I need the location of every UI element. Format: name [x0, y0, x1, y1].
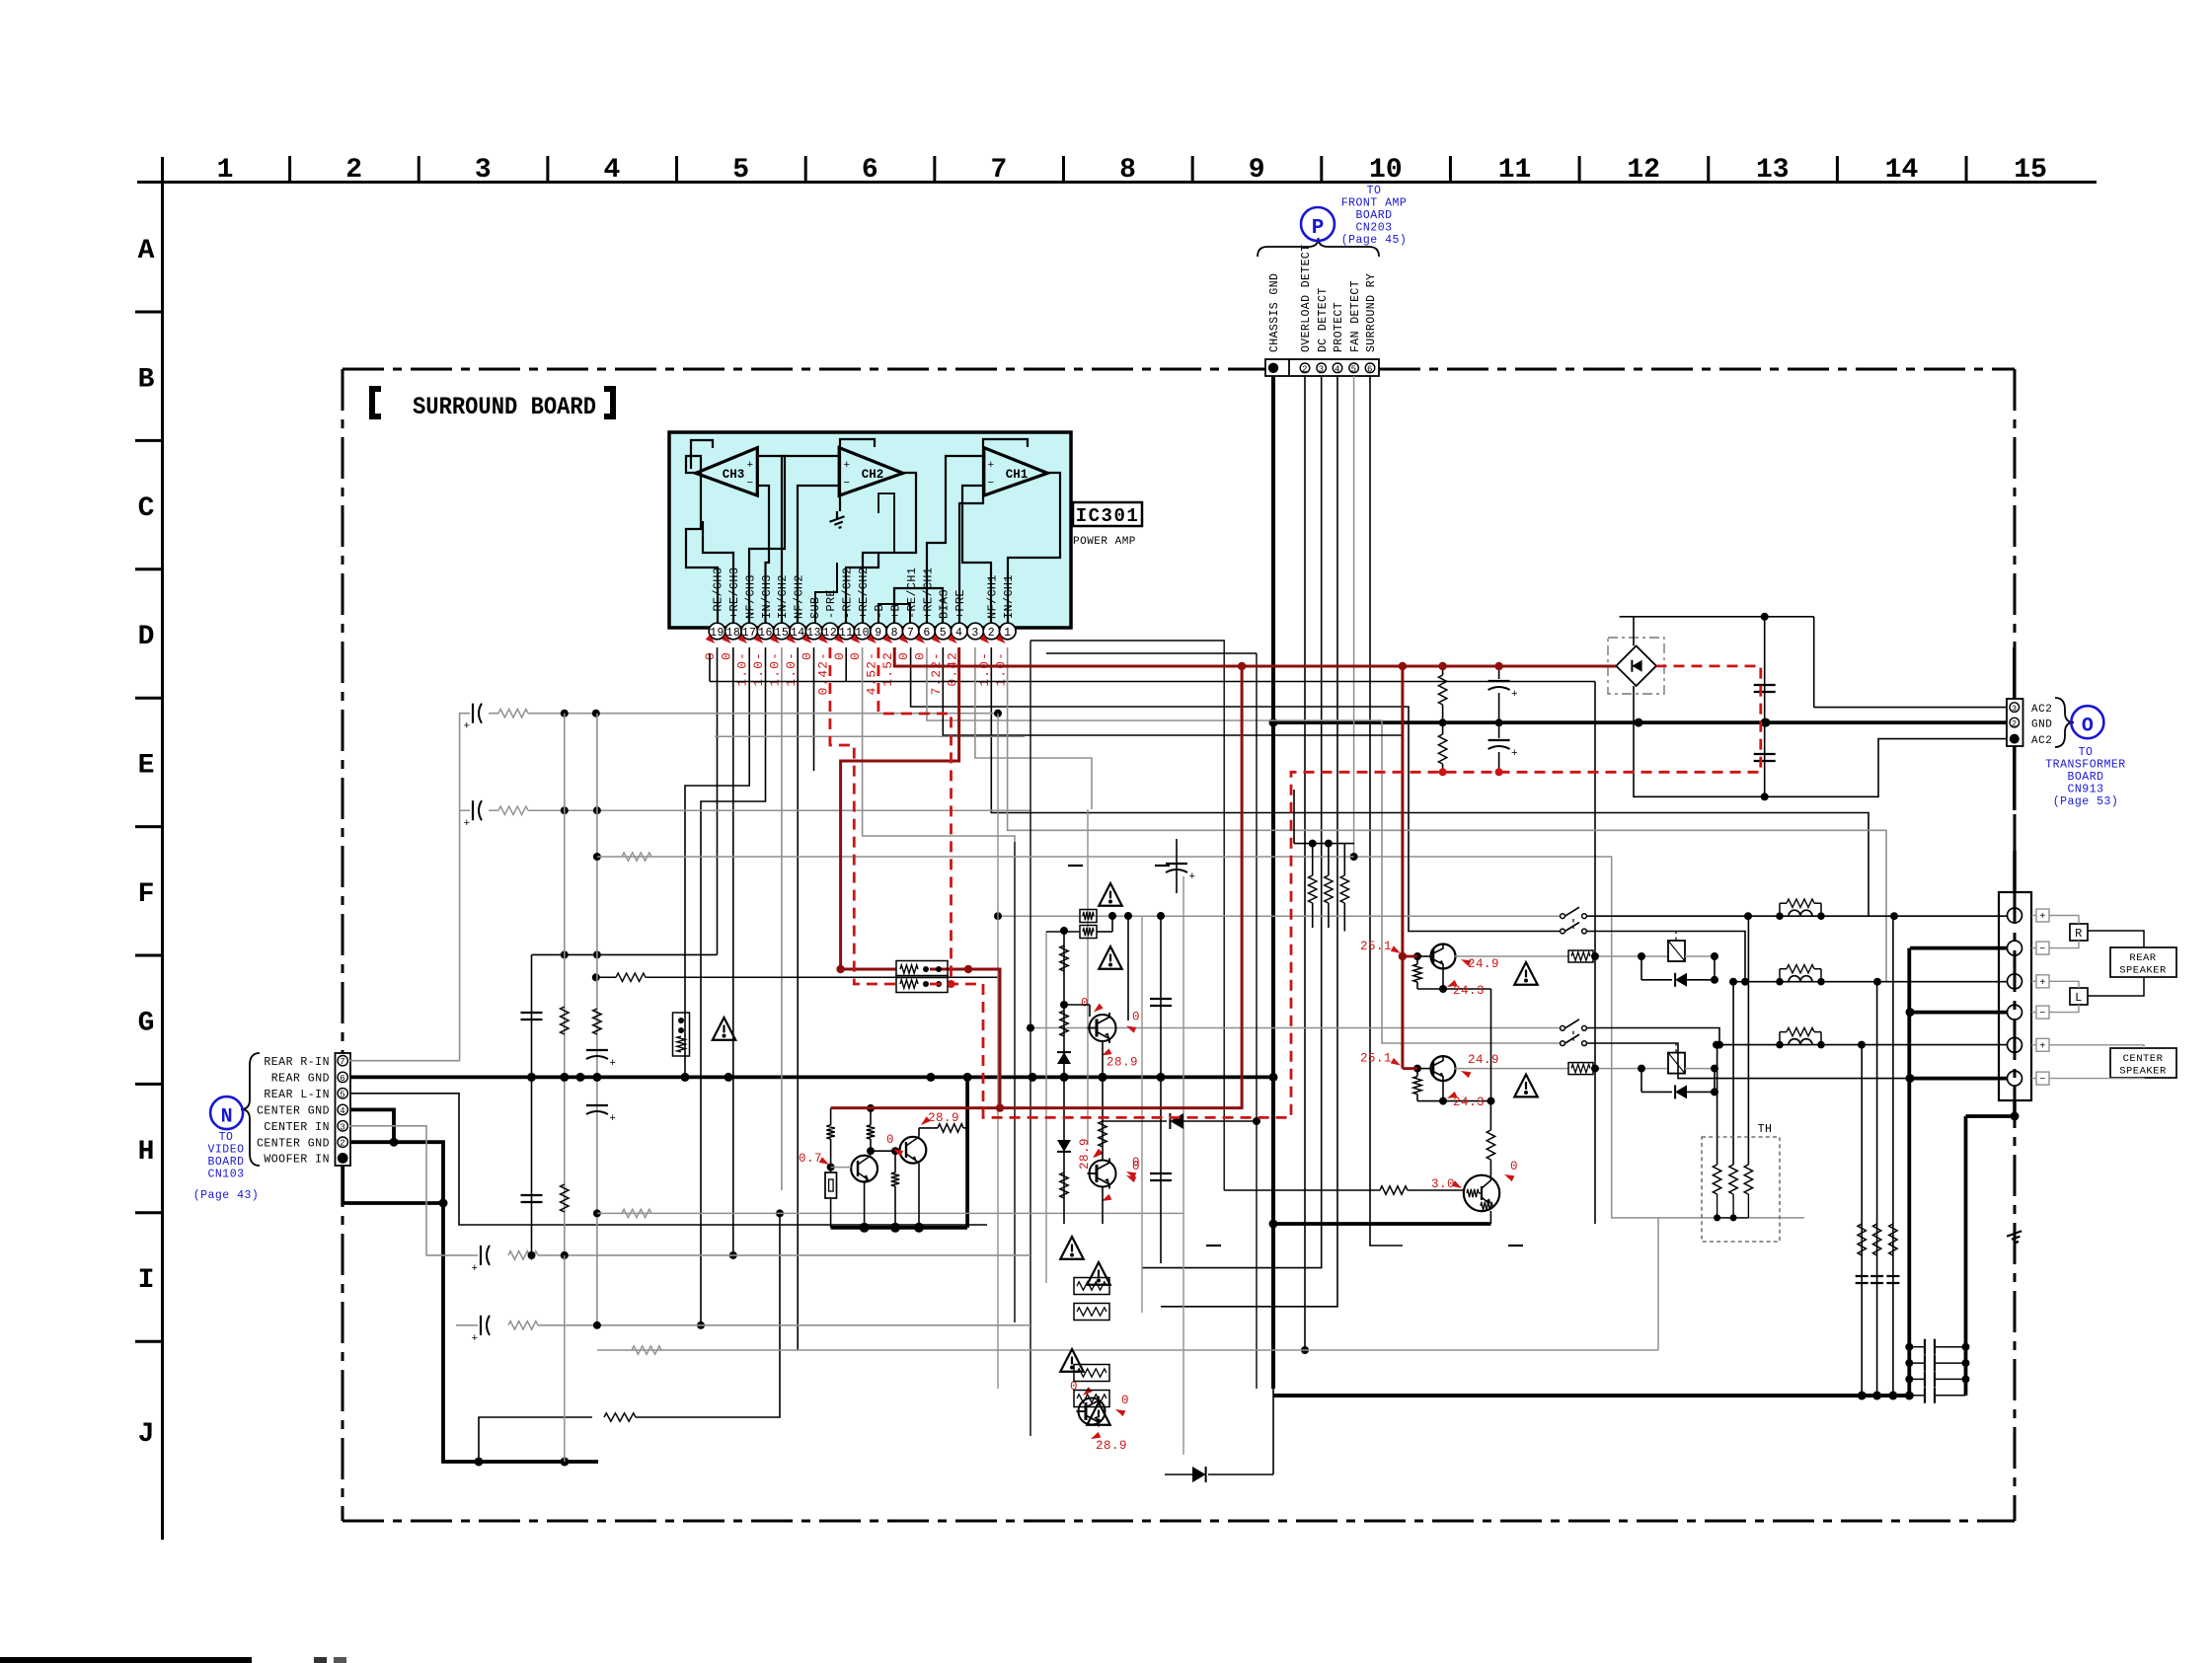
svg-text:R: R [2075, 927, 2083, 941]
svg-text:-RE/CH1: -RE/CH1 [905, 567, 919, 619]
svg-text:28.9: 28.9 [1106, 1056, 1138, 1070]
svg-text:+RE/CH2: +RE/CH2 [857, 567, 871, 619]
svg-text:CH3: CH3 [723, 468, 745, 482]
svg-text:4: 4 [1335, 365, 1340, 375]
svg-text:CENTER GND: CENTER GND [257, 1138, 330, 1151]
svg-text:BIAS: BIAS [938, 589, 952, 619]
svg-text:24.3: 24.3 [1453, 1096, 1485, 1109]
svg-text:−: − [746, 478, 753, 490]
svg-text:GND: GND [2031, 719, 2052, 731]
svg-text:6: 6 [862, 155, 878, 186]
svg-text:OVERLOAD DETECT: OVERLOAD DETECT [1300, 244, 1313, 352]
svg-text:+: + [471, 1263, 478, 1275]
svg-text:IC301: IC301 [1076, 505, 1140, 527]
svg-text:5: 5 [1351, 365, 1357, 375]
svg-text:4.52-: 4.52- [865, 651, 879, 695]
svg-text:1: 1 [1004, 627, 1011, 640]
svg-text:BOARD: BOARD [207, 1156, 244, 1169]
svg-text:0: 0 [1081, 997, 1089, 1011]
svg-text:POWER AMP: POWER AMP [1073, 536, 1136, 548]
svg-text:+PRE: +PRE [953, 589, 967, 619]
svg-text:6: 6 [923, 627, 930, 640]
svg-text:0: 0 [1132, 1011, 1140, 1024]
svg-text:−: − [2039, 945, 2046, 955]
svg-text:BOARD: BOARD [2067, 771, 2103, 784]
svg-text:19: 19 [710, 627, 725, 640]
svg-text:9: 9 [1249, 155, 1265, 186]
svg-text:14: 14 [1885, 155, 1919, 186]
svg-text:24.9: 24.9 [1468, 1053, 1499, 1067]
svg-text:TO: TO [2079, 746, 2094, 759]
svg-text:IN/CH2: IN/CH2 [776, 574, 790, 619]
svg-text:FAN DETECT: FAN DETECT [1349, 280, 1362, 352]
svg-text:FRONT AMP: FRONT AMP [1341, 197, 1408, 210]
svg-text:3: 3 [475, 155, 492, 186]
svg-text:WOOFER IN: WOOFER IN [264, 1154, 330, 1167]
svg-text:0: 0 [719, 651, 733, 660]
svg-text:0: 0 [832, 651, 847, 660]
svg-text:TRANSFORMER: TRANSFORMER [2045, 759, 2125, 772]
svg-text:-B: -B [873, 604, 886, 619]
svg-text:+: + [463, 721, 470, 733]
svg-text:8: 8 [891, 627, 898, 640]
svg-text:B: B [138, 364, 155, 395]
svg-text:1: 1 [217, 155, 234, 186]
svg-text:14: 14 [791, 627, 805, 640]
svg-text:SURROUND BOARD: SURROUND BOARD [413, 393, 596, 421]
svg-text:11: 11 [839, 627, 854, 640]
svg-text:+: + [987, 460, 994, 472]
svg-text:NF/CH2: NF/CH2 [792, 574, 805, 619]
svg-text:P: P [1312, 217, 1325, 240]
svg-text:15: 15 [2014, 155, 2047, 186]
svg-text:−: − [843, 478, 850, 490]
svg-text:15: 15 [774, 627, 789, 640]
svg-text:CN203: CN203 [1355, 222, 1392, 235]
svg-text:12: 12 [1627, 155, 1660, 186]
svg-text:N: N [221, 1106, 233, 1129]
svg-text:7: 7 [340, 1057, 345, 1067]
svg-text:IN/CH1: IN/CH1 [1002, 574, 1016, 619]
svg-text:CH2: CH2 [862, 468, 884, 482]
svg-text:CN103: CN103 [207, 1169, 244, 1181]
svg-text:7.22-: 7.22- [929, 651, 944, 695]
svg-text:3: 3 [340, 1122, 345, 1132]
svg-text:E: E [138, 751, 155, 782]
svg-text:+RE/CH3: +RE/CH3 [727, 567, 741, 619]
svg-text:-RE/CH3: -RE/CH3 [712, 567, 725, 619]
svg-text:CENTER GND: CENTER GND [257, 1105, 330, 1118]
svg-text:L: L [2075, 991, 2083, 1005]
svg-text:+: + [609, 1113, 616, 1125]
svg-text:8: 8 [1119, 155, 1136, 186]
svg-text:+: + [1511, 689, 1518, 701]
svg-text:−: − [2039, 1009, 2046, 1020]
svg-text:0: 0 [896, 651, 911, 660]
svg-text:13: 13 [806, 627, 821, 640]
svg-text:11: 11 [1498, 155, 1532, 186]
svg-text:CENTER: CENTER [2123, 1053, 2164, 1065]
svg-text:25.1: 25.1 [1360, 1052, 1392, 1066]
svg-text:+: + [746, 460, 753, 472]
svg-text:+B: +B [889, 604, 903, 619]
svg-text:6: 6 [1367, 365, 1373, 375]
svg-text:2: 2 [1302, 365, 1308, 375]
svg-text:SPEAKER: SPEAKER [2119, 1066, 2167, 1078]
svg-text:2: 2 [988, 627, 995, 640]
svg-text:SUB: SUB [808, 597, 822, 619]
svg-text:2: 2 [340, 1139, 345, 1149]
svg-text:5: 5 [340, 1090, 345, 1099]
svg-text:24.9: 24.9 [1468, 957, 1499, 971]
svg-text:REAR: REAR [2129, 952, 2156, 964]
svg-text:0: 0 [886, 1133, 894, 1147]
svg-text:+: + [2039, 978, 2046, 989]
svg-text:12: 12 [823, 627, 838, 640]
svg-text:18: 18 [725, 627, 740, 640]
svg-text:28.9: 28.9 [1078, 1138, 1092, 1170]
svg-text:SURROUND RY: SURROUND RY [1365, 273, 1378, 352]
svg-text:D: D [138, 622, 155, 652]
svg-text:4: 4 [955, 627, 962, 640]
svg-text:IN/CH3: IN/CH3 [760, 574, 774, 619]
svg-text:TO: TO [1367, 185, 1382, 197]
svg-text:VIDEO: VIDEO [207, 1144, 244, 1157]
svg-text:0: 0 [1132, 1160, 1140, 1173]
svg-text:3: 3 [1319, 365, 1325, 375]
svg-text:25.1: 25.1 [1360, 940, 1392, 953]
svg-text:+: + [843, 460, 850, 472]
svg-text:-PRE: -PRE [824, 589, 838, 619]
svg-text:DC DETECT: DC DETECT [1317, 287, 1330, 352]
svg-text:TO: TO [219, 1131, 234, 1144]
svg-text:4: 4 [604, 155, 621, 186]
svg-text:0.42-: 0.42- [815, 651, 830, 695]
svg-text:(Page 43): (Page 43) [193, 1189, 260, 1202]
svg-text:NF/CH3: NF/CH3 [743, 574, 757, 619]
svg-text:AC2: AC2 [2031, 735, 2052, 747]
svg-text:2: 2 [2012, 719, 2018, 729]
svg-text:REAR R-IN: REAR R-IN [264, 1056, 330, 1069]
svg-text:+RE/CH1: +RE/CH1 [921, 567, 935, 619]
svg-text:3: 3 [2012, 704, 2018, 714]
svg-text:G: G [138, 1008, 155, 1038]
svg-text:CH1: CH1 [1006, 468, 1029, 482]
svg-text:5: 5 [940, 627, 947, 640]
svg-text:−: − [2039, 1075, 2046, 1086]
svg-text:6: 6 [340, 1074, 345, 1084]
svg-text:17: 17 [742, 627, 757, 640]
svg-text:(Page 45): (Page 45) [1341, 234, 1408, 247]
svg-text:(Page 53): (Page 53) [2053, 795, 2119, 808]
svg-text:SPEAKER: SPEAKER [2119, 965, 2167, 977]
svg-text:13: 13 [1756, 155, 1790, 186]
svg-text:0: 0 [1510, 1160, 1518, 1173]
svg-text:0: 0 [848, 651, 863, 660]
svg-text:H: H [138, 1137, 155, 1168]
svg-text:REAR GND: REAR GND [271, 1073, 330, 1086]
svg-text:BOARD: BOARD [1355, 209, 1392, 222]
svg-text:3: 3 [971, 627, 978, 640]
svg-text:0: 0 [800, 651, 814, 660]
svg-text:24.3: 24.3 [1453, 984, 1485, 998]
svg-text:-RE/CH2: -RE/CH2 [841, 567, 855, 619]
svg-text:7: 7 [990, 155, 1007, 186]
svg-text:TH: TH [1758, 1123, 1773, 1136]
svg-text:3.0: 3.0 [1431, 1177, 1455, 1191]
svg-text:CENTER IN: CENTER IN [264, 1121, 330, 1134]
svg-text:10: 10 [855, 627, 870, 640]
svg-text:O: O [2082, 716, 2094, 738]
svg-text:+: + [2039, 912, 2046, 923]
svg-text:CHASSIS GND: CHASSIS GND [1268, 273, 1281, 352]
svg-text:CN913: CN913 [2067, 784, 2103, 796]
svg-text:+: + [1511, 748, 1518, 760]
svg-text:AC2: AC2 [2031, 704, 2052, 716]
svg-text:C: C [138, 493, 155, 524]
svg-text:28.9: 28.9 [1096, 1439, 1127, 1453]
svg-text:+: + [2039, 1041, 2046, 1052]
svg-text:REAR L-IN: REAR L-IN [264, 1089, 330, 1101]
svg-text:0.7: 0.7 [799, 1152, 822, 1166]
svg-text:4: 4 [340, 1106, 345, 1116]
svg-text:0: 0 [913, 651, 928, 660]
svg-text:J: J [138, 1419, 155, 1450]
svg-text:10: 10 [1369, 155, 1403, 186]
svg-text:28.9: 28.9 [928, 1111, 959, 1125]
svg-text:+: + [463, 818, 470, 830]
svg-text:A: A [138, 236, 155, 266]
svg-text:PROTECT: PROTECT [1333, 302, 1345, 352]
svg-text:I: I [138, 1265, 155, 1296]
svg-text:NF/CH1: NF/CH1 [986, 574, 1000, 619]
svg-text:−: − [987, 478, 994, 490]
svg-text:+: + [471, 1333, 478, 1345]
svg-text:16: 16 [758, 627, 773, 640]
svg-text:9: 9 [875, 627, 881, 640]
svg-text:7: 7 [907, 627, 914, 640]
svg-text:2: 2 [345, 155, 362, 186]
svg-text:+: + [1188, 871, 1195, 883]
svg-text:0: 0 [1121, 1394, 1129, 1407]
svg-text:+: + [609, 1058, 616, 1070]
svg-text:5: 5 [732, 155, 749, 186]
svg-text:F: F [138, 879, 155, 910]
